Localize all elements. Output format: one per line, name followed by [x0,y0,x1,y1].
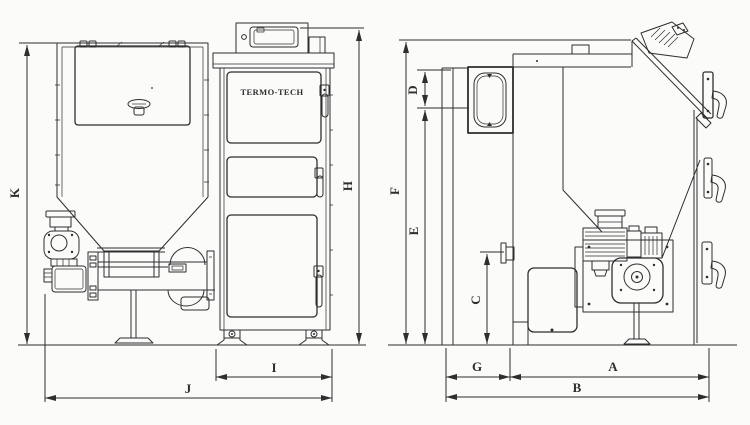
dimension-C: C [468,252,504,344]
front-view: TERMO-TECH [7,23,366,402]
dim-label-b: B [573,380,582,395]
boiler-foot-right [299,330,329,345]
technical-drawing: TERMO-TECH [0,0,750,425]
controller-side [641,22,694,58]
pump-stand [634,303,639,339]
sensor-pocket [572,45,589,54]
fuel-hopper [55,41,209,277]
dimension-F: F [387,40,631,344]
dim-label-h: H [340,181,355,191]
top-plate [513,54,632,67]
dimension-A: A [510,359,709,377]
brand-label: TERMO-TECH [240,87,303,97]
fan [168,248,209,311]
door-latch-middle [704,158,725,202]
dimension-H: H [300,28,364,344]
side-view: F D E C G A B [387,22,737,402]
dimension-I: I [216,349,332,381]
drawing-canvas: TERMO-TECH [0,0,750,425]
support-leg [115,290,153,343]
dimension-B: B [446,380,709,397]
dim-label-c: C [468,295,483,304]
upper-door: TERMO-TECH [227,72,329,143]
top-cap [213,53,334,68]
boiler-foot-left [217,330,247,345]
door-latch-top [703,72,726,118]
hopper-lid-handle [128,100,150,116]
flue-outlet [468,67,513,133]
circulation-pump [612,258,663,303]
dim-label-j: J [185,381,192,396]
front-wall [694,110,697,345]
feeder-tube [98,262,215,290]
boiler-front: TERMO-TECH [213,23,334,345]
dim-label-e: E [406,227,421,236]
dim-label-a: A [608,359,618,374]
boiler-body [220,68,330,330]
pump-assembly [575,210,673,344]
back-panel [442,68,468,345]
feeder-flange [88,252,98,300]
door-latch-bottom [702,242,725,288]
dimension-K: K [7,43,58,344]
dimension-G: G [446,359,510,377]
dim-label-i: I [271,360,276,375]
hopper-funnel-side [563,67,700,258]
dimension-D: D [405,70,468,108]
sloped-lid [632,38,711,128]
burner-flange [207,251,214,300]
return-pipe-stub [501,243,514,263]
controller [236,23,308,53]
pump-motor [641,227,662,258]
chimney-stub [309,37,325,53]
lower-door [227,215,323,317]
dim-label-k: K [7,187,22,198]
dimension-E: E [406,110,425,344]
middle-door [227,157,323,197]
hopper-lid [75,46,190,125]
feeder-motor-side [583,210,627,261]
ash-box [528,268,577,332]
dim-label-d: D [405,85,420,94]
boiler-side [442,22,726,345]
dim-label-g: G [472,359,482,374]
dim-label-f: F [387,187,402,195]
